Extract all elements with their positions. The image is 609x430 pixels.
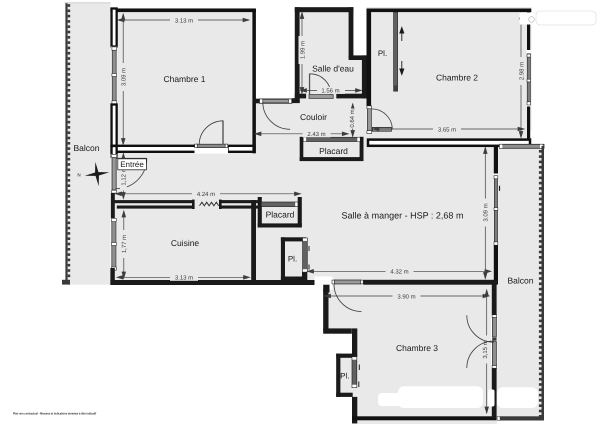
svg-text:3.90 m: 3.90 m [397,293,415,300]
svg-text:Pl.: Pl. [378,49,387,58]
svg-text:3.65 m: 3.65 m [438,126,456,133]
svg-text:Cuisine: Cuisine [171,238,200,248]
svg-text:3.13 m: 3.13 m [175,275,193,282]
svg-text:Balcon: Balcon [74,143,100,153]
svg-text:2.43 m: 2.43 m [307,131,325,138]
svg-text:Placard: Placard [319,146,348,156]
svg-text:Salle à manger - HSP : 2,68 m: Salle à manger - HSP : 2,68 m [342,211,464,221]
svg-text:Placard: Placard [266,210,295,220]
svg-text:Pl.: Pl. [288,255,297,264]
svg-text:Chambre 1: Chambre 1 [163,74,205,84]
svg-text:3.09 m: 3.09 m [121,68,128,86]
svg-text:3.09 m: 3.09 m [483,203,490,221]
svg-text:1,77 m: 1,77 m [121,235,128,253]
svg-text:3.13 m: 3.13 m [175,17,193,24]
svg-text:4.32 m: 4.32 m [390,269,408,276]
svg-text:Pl.: Pl. [340,372,349,381]
svg-text:4.24 m: 4.24 m [197,191,215,198]
svg-text:Entrée: Entrée [120,160,144,169]
svg-text:Chambre 2: Chambre 2 [436,73,478,83]
svg-text:Plan non contractuel - Mesures: Plan non contractuel - Mesures et indica… [13,412,97,415]
svg-text:1.99 m: 1.99 m [299,41,306,59]
svg-text:Salle d'eau: Salle d'eau [312,64,354,74]
svg-text:0.64 m: 0.64 m [349,109,356,127]
svg-text:Chambre 3: Chambre 3 [396,343,438,353]
svg-text:Couloir: Couloir [300,112,327,122]
svg-text:N: N [77,173,80,178]
svg-text:2.98 m: 2.98 m [518,62,525,80]
svg-text:Balcon: Balcon [508,276,534,286]
svg-text:1.56 m: 1.56 m [321,88,339,95]
